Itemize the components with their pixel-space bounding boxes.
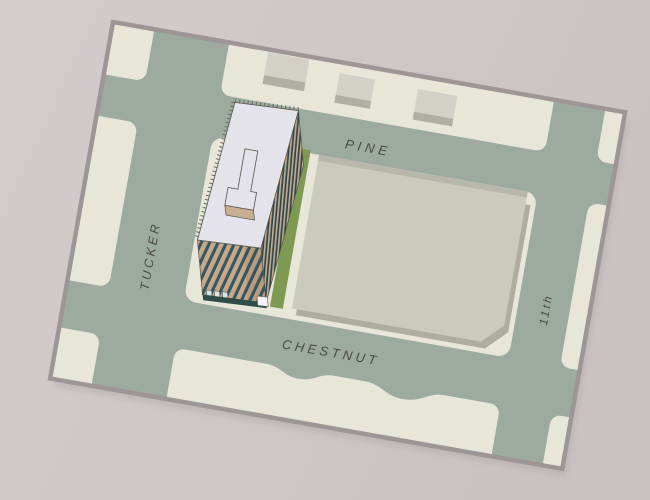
site-plan-canvas: PINE CHESTNUT TUCKER 11th (0, 0, 650, 500)
site-plan-svg: PINE CHESTNUT TUCKER 11th (0, 0, 650, 500)
entry-canopy-1 (205, 290, 212, 297)
small-building-2 (334, 73, 375, 109)
site-plan-group: PINE CHESTNUT TUCKER 11th (50, 22, 625, 469)
corner-entry-volume (256, 295, 270, 307)
entry-canopy-2 (213, 290, 220, 297)
entry-canopy-3 (221, 291, 228, 298)
